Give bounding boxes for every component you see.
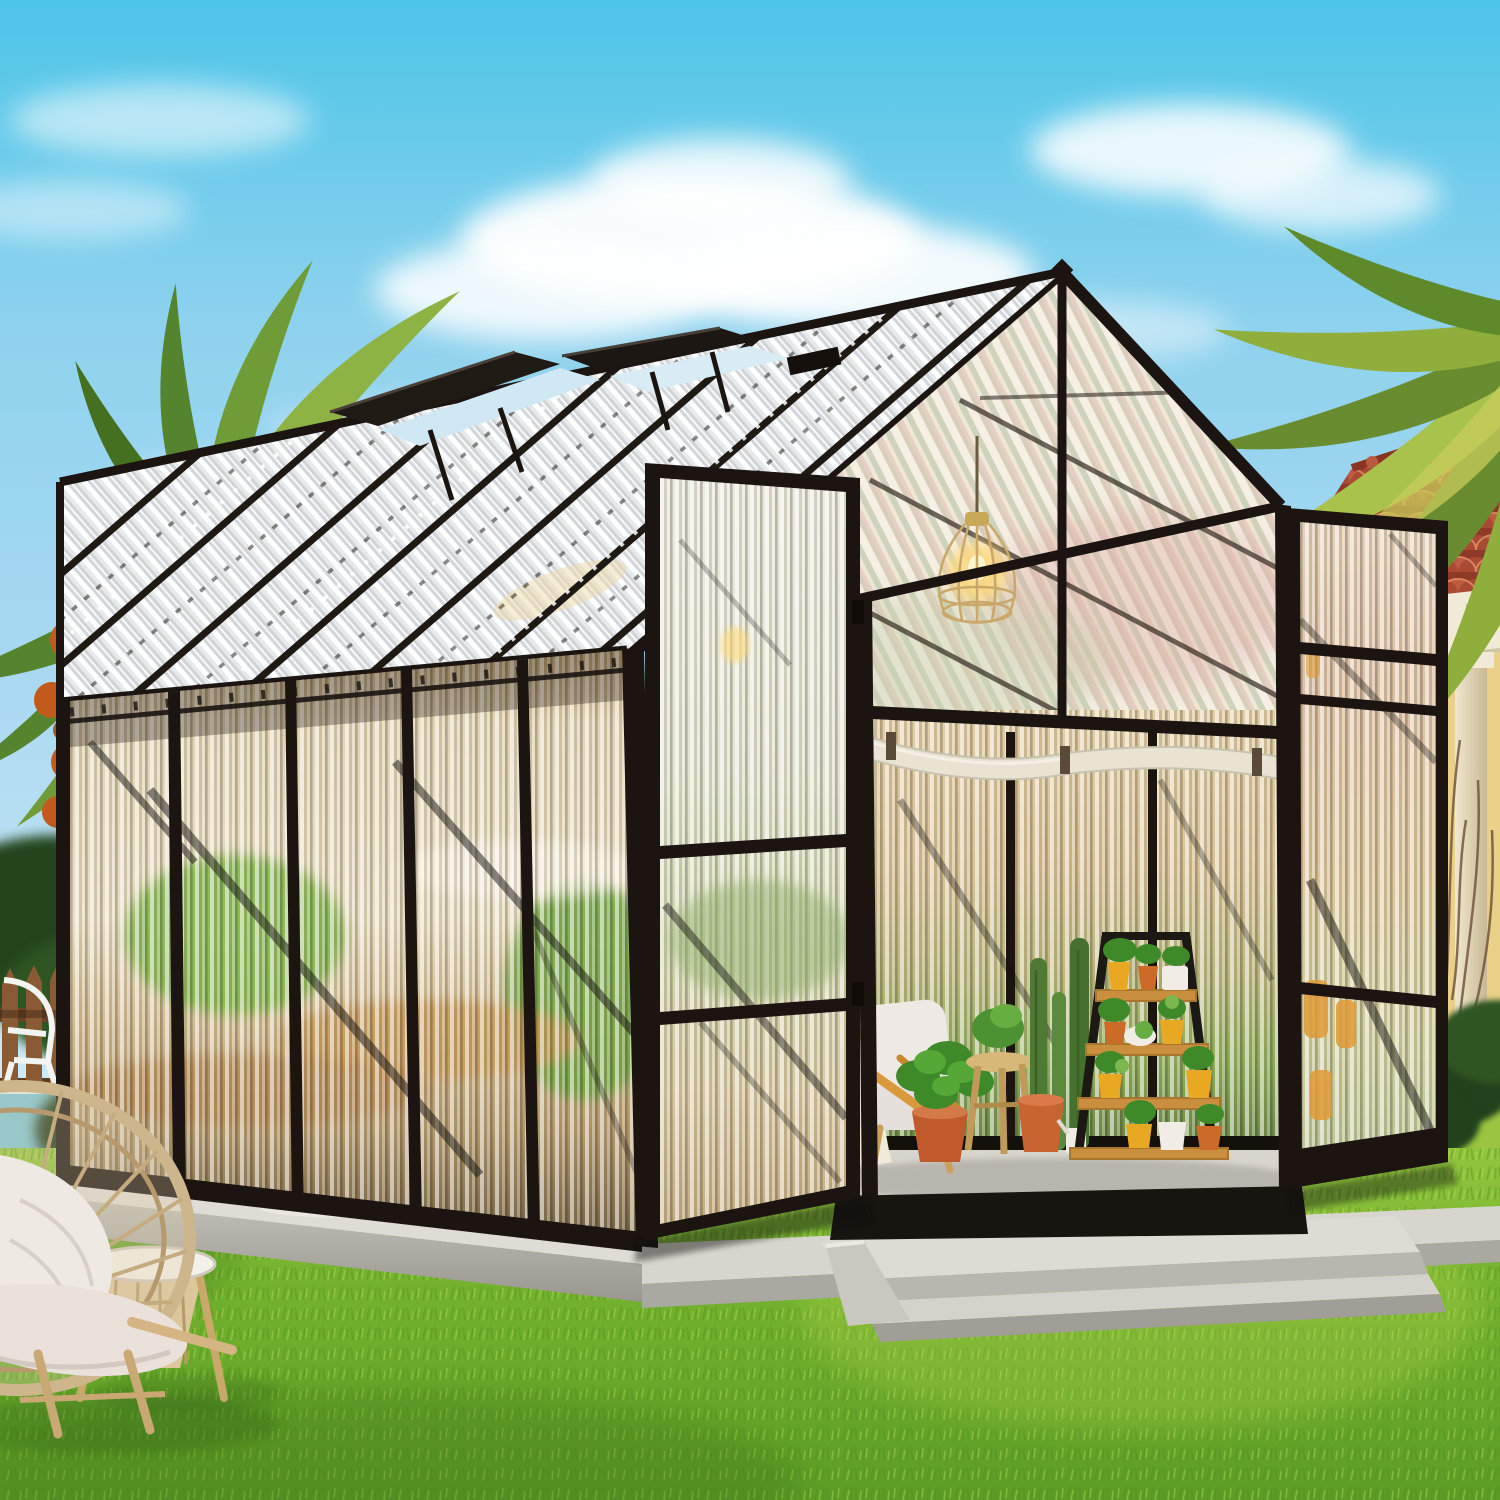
hinge: [852, 982, 864, 1006]
right-door-open: [1288, 508, 1458, 1212]
light-through-door: [721, 627, 749, 663]
left-door-open: [634, 463, 872, 1262]
terracotta-pot: [1018, 1100, 1064, 1152]
backyard-greenhouse-photo: Backyard greenhouse with black aluminum …: [0, 0, 1500, 1500]
house-column: [1455, 668, 1487, 1018]
doorway-view: [820, 710, 1304, 1202]
hinge: [852, 600, 864, 624]
photo-stage: Backyard greenhouse with black aluminum …: [0, 0, 1500, 1500]
